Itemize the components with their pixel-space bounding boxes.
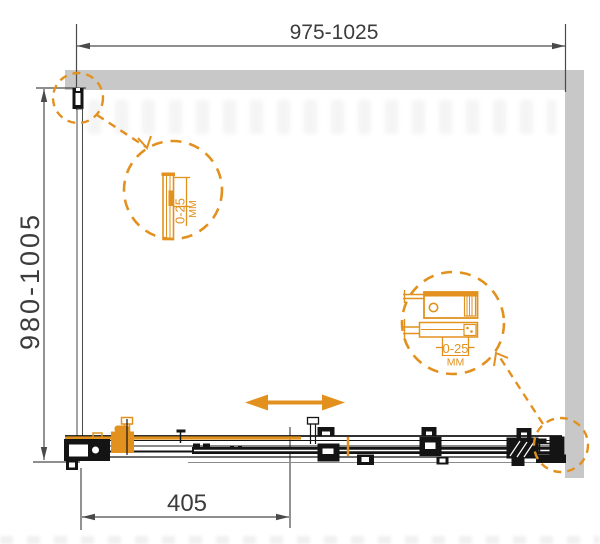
arrowhead-right [276,514,289,520]
zoom-connector-wall-profile [97,115,151,148]
roller-carriage-middle [308,418,340,462]
roller-carriage-wall-end [507,428,539,466]
track-left-end-cap [64,439,110,470]
depth-dimension: 980-1005 [15,88,86,462]
zoom-connector-door-mechanism [494,353,543,424]
roller-carriage-highlighted [111,418,134,456]
detail-view-wall-profile: 0-25 ММ [162,173,200,240]
door-track [64,418,566,471]
wall-profile [73,88,84,456]
door-width-label: 405 [167,490,207,517]
depth-dimension-label: 980-1005 [15,212,45,350]
arrowhead-left [82,514,95,520]
slide-direction-arrow [245,395,345,411]
technical-drawing-canvas: 975-1025 980-1005 405 [0,0,600,544]
wall-profile-adjustment-value: 0-25 [173,198,188,224]
shower-enclosure-plan-drawing: 975-1025 980-1005 405 [0,0,600,544]
width-dimension: 975-1025 [77,21,566,110]
wall-profile-adjustment-unit: ММ [187,200,199,218]
right-wall [565,70,584,478]
arrowhead-right [552,43,565,49]
bottom-guide-bracket [357,455,374,466]
arrowhead-up [41,89,47,102]
panel-clip [193,444,200,448]
width-dimension-label: 975-1025 [290,21,379,44]
arrowhead-left [77,43,90,49]
door-mechanism-adjustment-value: 0-25 [442,341,468,356]
top-wall [65,70,584,90]
fixed-glass-panel [77,109,83,456]
panel-clip [203,444,210,448]
door-mechanism-adjustment-unit: ММ [447,357,465,369]
arrowhead-down [41,447,47,460]
